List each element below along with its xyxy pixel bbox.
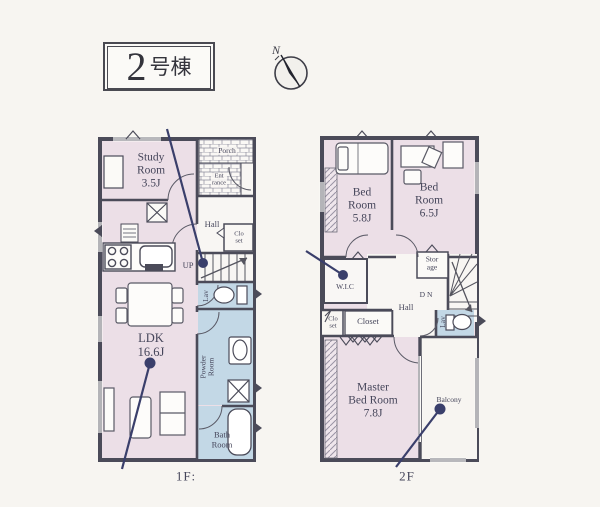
kitchen-sink	[140, 246, 172, 267]
kitchen-counter	[103, 243, 175, 271]
hatch-strip-bottom	[325, 340, 337, 458]
floor1-plan	[94, 131, 262, 461]
bed	[336, 143, 388, 174]
sink-icon	[229, 337, 251, 364]
floor2-plan	[320, 131, 487, 463]
plan-drawing	[0, 0, 600, 507]
floorplan-page: 2 号棟 N	[0, 0, 600, 507]
toilet-icon-1f	[214, 286, 247, 304]
hatch-strip-top	[325, 168, 337, 232]
fridge-symbol	[121, 224, 138, 242]
closet-room	[345, 311, 392, 335]
wall-markers-2f	[478, 315, 486, 327]
tv-board	[104, 388, 114, 431]
washing-machine-icon	[228, 380, 249, 402]
balcony-area	[421, 338, 477, 459]
entrance-tile	[199, 163, 241, 196]
counter-hatch-square	[147, 203, 167, 222]
pillow	[338, 147, 348, 170]
toilet-icon-2f	[446, 315, 471, 331]
porch-tile	[199, 139, 253, 163]
study-closet	[104, 156, 123, 188]
stove-icon	[105, 245, 131, 269]
hall-closet-1f	[224, 224, 253, 251]
storage-room	[417, 252, 448, 278]
bathtub-icon	[228, 409, 251, 455]
